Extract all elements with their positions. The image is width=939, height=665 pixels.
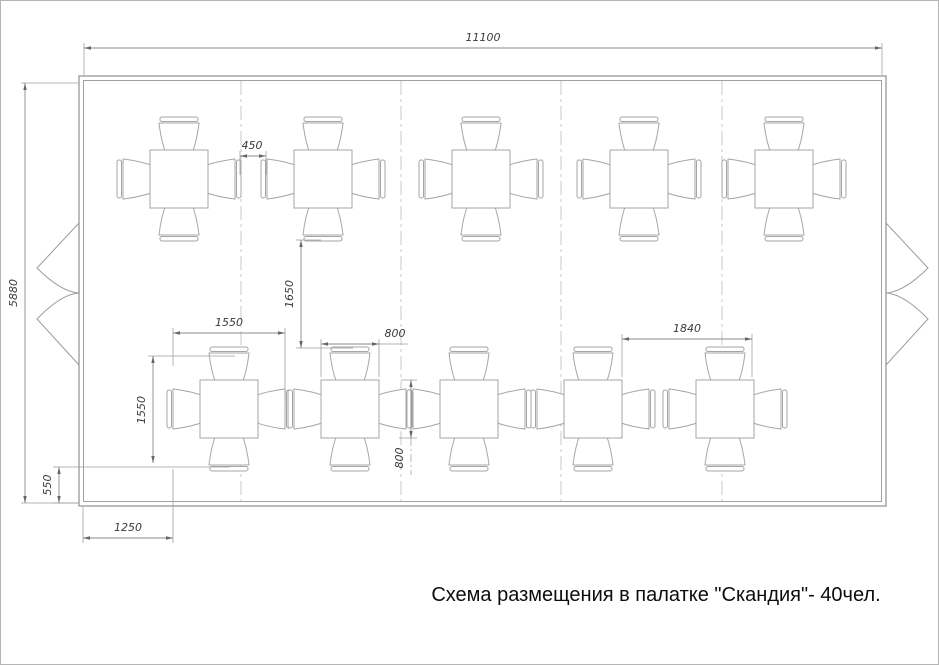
chair-backrest [620,237,658,242]
chair [117,159,155,199]
tabletop [755,150,813,208]
dimension-label: 1550 [215,316,243,329]
tables-layer [117,117,846,471]
chair-backrest [160,237,198,242]
left-entrance-flap-bottom [37,293,79,365]
table-row2-4 [531,347,655,471]
chair-backrest [706,467,744,472]
dimension-arrow [875,46,882,49]
table-row1-2 [261,117,385,241]
chair [209,433,249,471]
chair [419,159,457,199]
dimension-arrow [321,342,328,345]
dimension-label: 1650 [283,280,296,308]
dimensions-layer: 1110058804501650155015508008001840550125… [7,31,882,543]
chair [764,117,804,155]
dimension-arrow [622,337,629,340]
tabletop [294,150,352,208]
chair [619,203,659,241]
chair [764,203,804,241]
chair-backrest [450,347,488,352]
chair-backrest [117,160,122,198]
chair [705,433,745,471]
right-entrance-flap-bottom [886,293,928,365]
tent-entrance-flaps [37,223,928,365]
chair-backrest [210,347,248,352]
dimension-arrow [57,496,60,503]
dimension-arrow [278,331,285,334]
tabletop [440,380,498,438]
table-row1-3 [419,117,543,241]
dimension-arrow [166,536,173,539]
chair [531,389,569,429]
chair [722,159,760,199]
chair-backrest [531,390,536,428]
tabletop [610,150,668,208]
tabletop [564,380,622,438]
chair [159,203,199,241]
chair-backrest [574,467,612,472]
chair [573,347,613,385]
chair-backrest [842,160,847,198]
drawing-caption: Схема размещения в палатке "Скандия"- 40… [431,584,880,606]
chair-backrest [160,117,198,122]
chair-backrest [462,237,500,242]
chair [749,389,787,429]
dimension-arrow [151,456,154,463]
chair-backrest [381,160,386,198]
dimension-11100: 11100 [84,31,882,75]
dimension-label: 1840 [673,322,701,335]
dimension-arrow [372,342,379,345]
chair [330,347,370,385]
dimension-label: 800 [393,448,406,469]
dimension-label: 800 [385,327,406,340]
chair-backrest [331,467,369,472]
dimension-arrow [409,380,412,387]
chair-backrest [697,160,702,198]
chair [303,203,343,241]
right-entrance-flap-top [886,223,928,293]
table-row2-3 [407,347,531,471]
dimension-1650: 1650 [283,240,353,348]
chair [159,117,199,155]
chair [261,159,299,199]
chair [461,203,501,241]
chair [619,117,659,155]
tabletop [696,380,754,438]
chair [347,159,385,199]
dimension-arrow [23,496,26,503]
dimension-arrow [259,154,266,157]
tabletop [150,150,208,208]
chair [573,433,613,471]
chair-backrest [577,160,582,198]
dimension-arrow [299,240,302,247]
tabletop [321,380,379,438]
dimension-arrow [84,46,91,49]
chair-backrest [706,347,744,352]
table-row1-5 [722,117,846,241]
chair-backrest [651,390,656,428]
chair [167,389,205,429]
dimension-label: 1250 [114,521,142,534]
dimension-label: 11100 [466,31,501,44]
dimension-arrow [409,431,412,438]
table-row2-5 [663,347,787,471]
table-row1-1 [117,117,241,241]
table-row1-4 [577,117,701,241]
left-entrance-flap-top [37,223,79,293]
chair [505,159,543,199]
chair-backrest [462,117,500,122]
chair [449,433,489,471]
chair-backrest [419,160,424,198]
dimension-550: 550 [41,467,230,503]
chair-backrest [722,160,727,198]
chair-backrest [167,390,172,428]
chair-backrest [574,347,612,352]
dimension-arrow [173,331,180,334]
dimension-arrow [151,356,154,363]
chair-backrest [765,237,803,242]
chair [330,433,370,471]
chair [808,159,846,199]
chair [617,389,655,429]
dimension-arrow [57,467,60,474]
chair [493,389,531,429]
chair-backrest [765,117,803,122]
drawing-sheet: 1110058804501650155015508008001840550125… [0,0,939,665]
chair [374,389,412,429]
table-row2-1 [167,347,291,471]
dimension-arrow [23,83,26,90]
dimension-label: 550 [41,475,54,496]
chair [449,347,489,385]
chair-backrest [663,390,668,428]
chair-backrest [288,390,293,428]
chair-backrest [620,117,658,122]
chair [288,389,326,429]
chair [407,389,445,429]
chair-backrest [783,390,788,428]
tabletop [452,150,510,208]
chair [203,159,241,199]
chair [663,389,701,429]
chair-backrest [527,390,532,428]
dimension-label: 1550 [135,396,148,424]
chair-backrest [539,160,544,198]
dimension-arrow [299,341,302,348]
tabletop [200,380,258,438]
chair [577,159,615,199]
chair [303,117,343,155]
chair-backrest [450,467,488,472]
chair [705,347,745,385]
chair [663,159,701,199]
chair [209,347,249,385]
floor-plan-canvas: 1110058804501650155015508008001840550125… [1,1,939,665]
dimension-label: 450 [242,139,263,152]
dimension-label: 5880 [7,279,20,307]
dimension-arrow [83,536,90,539]
chair-backrest [304,117,342,122]
chair-backrest [261,160,266,198]
dimension-5880: 5880 [7,83,78,503]
chair [461,117,501,155]
dimension-arrow [745,337,752,340]
